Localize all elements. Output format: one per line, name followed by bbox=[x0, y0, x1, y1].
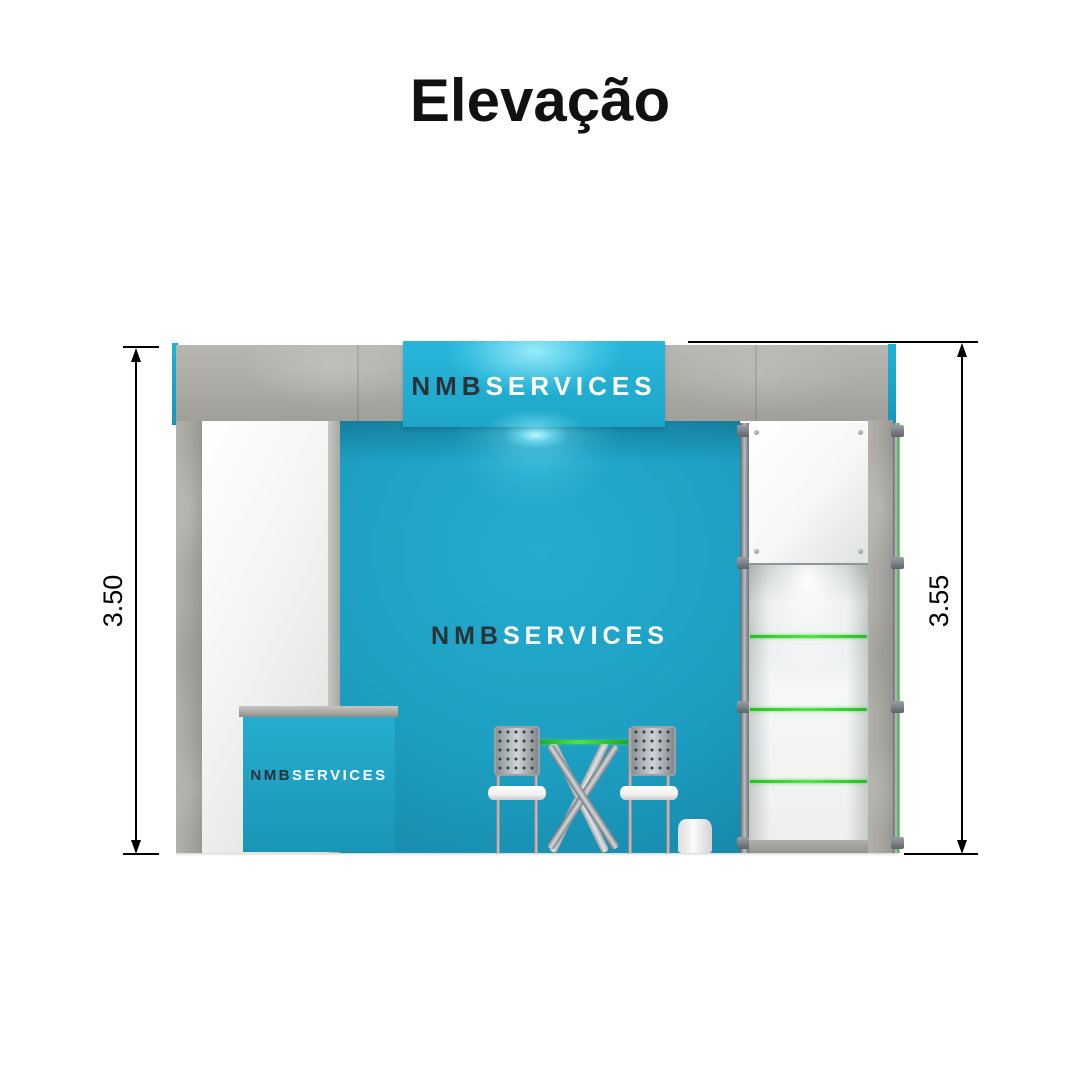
sign-logo: NMBSERVICES bbox=[403, 371, 665, 402]
page-title: Elevação bbox=[0, 66, 1080, 135]
concrete-column-left bbox=[176, 420, 202, 853]
wall-logo: NMBSERVICES bbox=[350, 622, 750, 651]
rail-clip bbox=[891, 701, 904, 713]
dimension-left-tick-top bbox=[123, 346, 159, 348]
screw-icon bbox=[754, 549, 759, 554]
dimension-right-label: 3.55 bbox=[913, 573, 965, 629]
counter-top bbox=[239, 706, 398, 717]
arrow-up-icon bbox=[957, 343, 967, 357]
wall-logo-secondary: SERVICES bbox=[503, 622, 669, 650]
glass-shelf bbox=[750, 635, 867, 638]
dimension-left-label: 3.50 bbox=[87, 573, 139, 629]
stool-back bbox=[630, 726, 676, 776]
glass-shelf bbox=[750, 708, 867, 711]
rail-clip bbox=[891, 557, 904, 569]
display-rail-left bbox=[740, 423, 749, 853]
glass-shelf bbox=[750, 780, 867, 783]
side-wall-edge-right bbox=[888, 344, 896, 428]
stool-back bbox=[494, 726, 540, 776]
display-rail-right bbox=[893, 423, 899, 853]
concrete-column-right bbox=[868, 420, 893, 853]
sign-logo-secondary: SERVICES bbox=[486, 371, 657, 401]
counter-front: NMBSERVICES bbox=[243, 717, 395, 852]
rail-clip bbox=[891, 425, 904, 437]
rail-clip bbox=[891, 837, 904, 849]
screw-icon bbox=[754, 430, 759, 435]
waste-bin bbox=[678, 819, 712, 853]
screw-icon bbox=[858, 549, 863, 554]
stool-seat bbox=[488, 786, 546, 800]
counter-logo: NMBSERVICES bbox=[243, 767, 395, 784]
arrow-down-icon bbox=[131, 840, 141, 854]
bar-stool-left bbox=[488, 726, 546, 854]
stool-seat bbox=[620, 786, 678, 800]
beam-seam bbox=[755, 345, 757, 421]
display-alcove bbox=[749, 565, 868, 840]
elevation-drawing: Elevação 3.50 3.55 NMBSERVICES bbox=[0, 0, 1080, 1080]
dimension-left-tick-bottom bbox=[123, 853, 159, 855]
counter-logo-primary: NMB bbox=[250, 767, 292, 784]
wall-logo-primary: NMB bbox=[431, 622, 503, 650]
bar-stool-right bbox=[620, 726, 678, 854]
beam-seam bbox=[357, 345, 359, 421]
screw-icon bbox=[858, 430, 863, 435]
dimension-right-tick-bottom bbox=[904, 853, 978, 855]
signboard: NMBSERVICES bbox=[403, 341, 665, 427]
table-glass-top bbox=[538, 740, 628, 744]
display-base bbox=[749, 840, 868, 853]
dimension-right-extension-top bbox=[688, 341, 978, 343]
floor-line bbox=[176, 853, 898, 856]
arrow-up-icon bbox=[131, 348, 141, 362]
counter-logo-secondary: SERVICES bbox=[292, 767, 388, 784]
sign-logo-primary: NMB bbox=[411, 371, 485, 401]
display-top-panel bbox=[749, 423, 868, 565]
rail-green-edge bbox=[898, 423, 900, 853]
arrow-down-icon bbox=[957, 840, 967, 854]
spotlight-cone bbox=[428, 421, 644, 616]
